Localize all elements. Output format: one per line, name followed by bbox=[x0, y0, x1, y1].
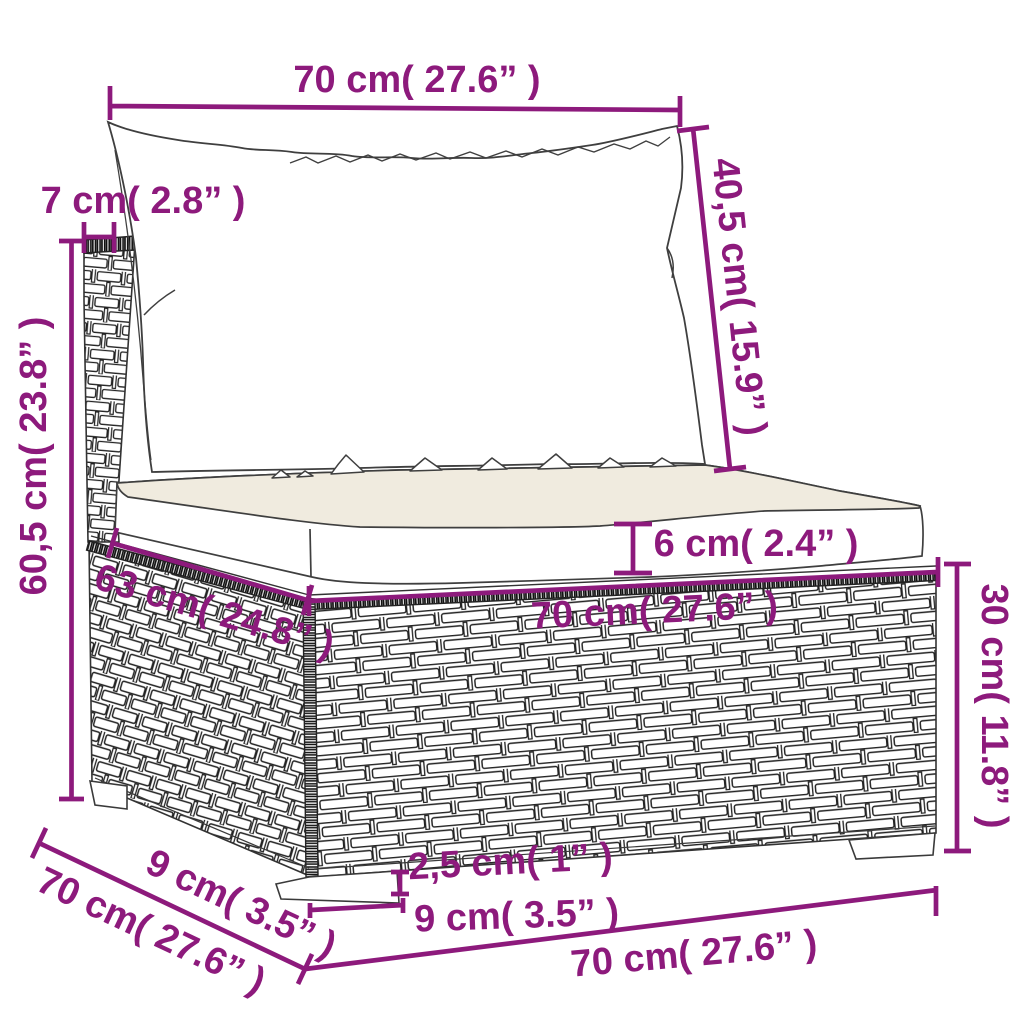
svg-text:30 cm( 11.8” ): 30 cm( 11.8” ) bbox=[973, 583, 1015, 828]
svg-text:6 cm( 2.4” ): 6 cm( 2.4” ) bbox=[654, 523, 859, 565]
svg-text:60,5 cm( 23.8” ): 60,5 cm( 23.8” ) bbox=[13, 317, 55, 596]
svg-text:7 cm( 2.8” ): 7 cm( 2.8” ) bbox=[41, 180, 246, 222]
svg-text:70 cm( 27.6” ): 70 cm( 27.6” ) bbox=[293, 59, 540, 101]
